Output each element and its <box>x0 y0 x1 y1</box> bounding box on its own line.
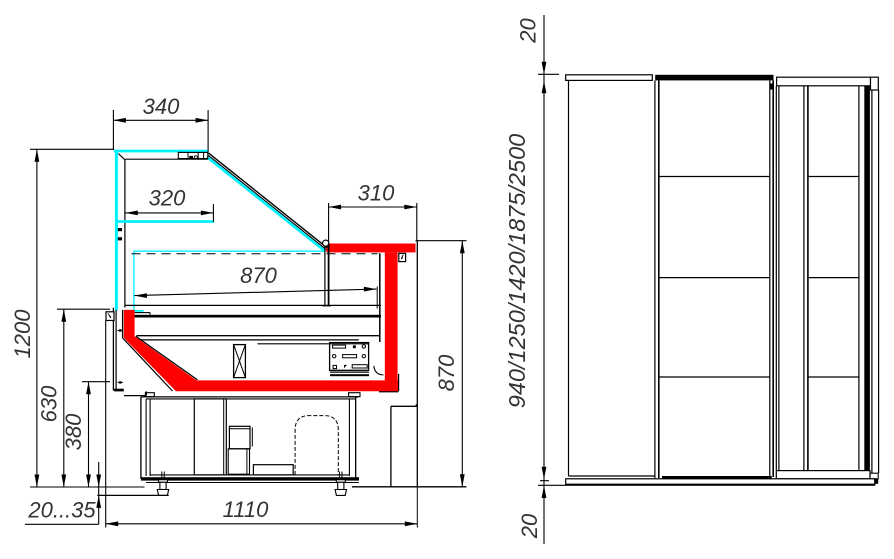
svg-text:870: 870 <box>240 263 277 288</box>
svg-text:310: 310 <box>358 180 395 205</box>
svg-text:1110: 1110 <box>223 497 269 522</box>
svg-text:870: 870 <box>434 354 459 391</box>
svg-text:20: 20 <box>515 18 540 44</box>
svg-text:20: 20 <box>517 513 542 539</box>
svg-text:340: 340 <box>143 94 180 119</box>
svg-text:940/1250/1420/1875/2500: 940/1250/1420/1875/2500 <box>504 134 530 408</box>
svg-text:20...35: 20...35 <box>27 497 96 522</box>
svg-text:380: 380 <box>61 413 86 450</box>
svg-text:630: 630 <box>36 385 61 422</box>
svg-text:320: 320 <box>149 185 186 210</box>
svg-text:1200: 1200 <box>10 309 35 359</box>
